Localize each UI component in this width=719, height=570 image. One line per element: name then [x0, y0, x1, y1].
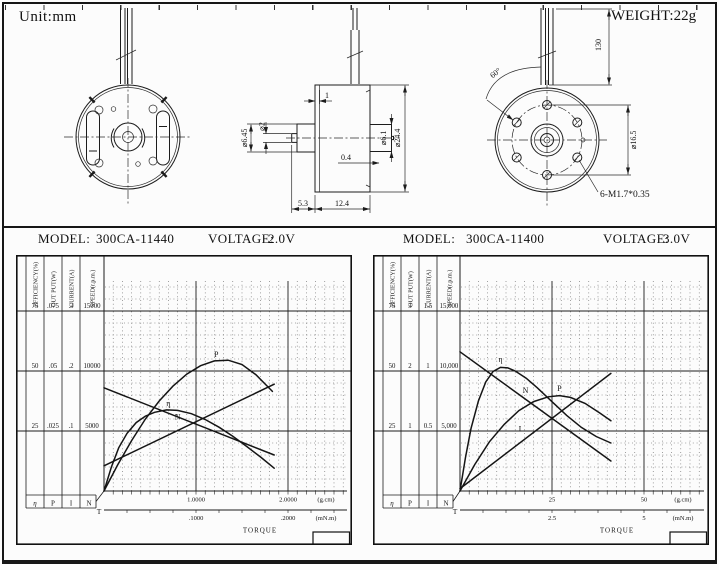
lead-wires-front [116, 8, 136, 84]
unit-gcm: (g.cm) [317, 497, 334, 504]
dim-body-len-label: 12.4 [335, 199, 349, 208]
tick-label-gcm: 50 [641, 497, 648, 504]
dim-shaft-dia-label: ⌀2 [258, 122, 267, 131]
dim-bearing-dia-label: ⌀6.1 [379, 131, 388, 146]
scale-columns: EFFICIENCY(%)755025OUT PUT(W)321CURRENT(… [389, 262, 459, 430]
corner-box [313, 532, 350, 544]
curve-label-P: P [214, 350, 219, 359]
grid [105, 281, 347, 513]
scale-title: SPEED(r.p.m.) [447, 270, 454, 307]
scale-value: 15000 [84, 303, 102, 310]
scale-value: 1 [426, 363, 429, 370]
scale-title: EFFICIENCY(%) [390, 262, 397, 307]
performance-chart-2v: EFFICIENCY(%)755025OUT PUT(W).075.05.025… [16, 255, 352, 545]
scale-value: 3 [408, 303, 412, 310]
legend-cell: η [33, 500, 37, 508]
curve-η [460, 367, 611, 491]
voltage-value: 2.0V [268, 231, 295, 247]
scale-value: .3 [68, 303, 74, 310]
scale-value: 10000 [84, 363, 102, 370]
model-value: 300CA-11440 [96, 231, 174, 247]
tick-label-gcm: 25 [549, 497, 556, 504]
x-axis-title: TORQUE [600, 527, 634, 535]
scale-value: 0.5 [424, 423, 433, 430]
chart-header: MODEL: 300CA-11440 VOLTAGE: 2.0V [16, 231, 352, 253]
curve-label-N: N [175, 413, 181, 422]
unit-mnm: (mN.m) [673, 515, 694, 522]
curve-label-η: η [498, 355, 502, 364]
tick-label-mnm: 2.5 [548, 515, 556, 522]
grid [461, 281, 704, 513]
scale-value: .1 [68, 423, 73, 430]
tick-label-gcm: 1.0000 [187, 497, 205, 504]
unit-mnm: (mN.m) [316, 515, 337, 522]
legend-cell: P [408, 500, 412, 508]
unit-label: Unit:mm [19, 9, 77, 26]
scale-value: 75 [32, 303, 39, 310]
rear-view: 60° ⌀16.5 6-M1.7*0.35 130 [486, 8, 650, 206]
scale-value: 75 [389, 303, 396, 310]
model-label: MODEL: [38, 231, 90, 247]
dim-pin-label: 0.4 [341, 153, 351, 162]
dim-screws-label: 6-M1.7*0.35 [600, 190, 650, 200]
dim-shaft-len-label: 5.3 [298, 199, 308, 208]
tick-label-mnm: .1000 [189, 515, 204, 522]
chart-svg: EFFICIENCY(%)755025OUT PUT(W)321CURRENT(… [373, 255, 709, 545]
axes [17, 256, 351, 544]
curve-I [104, 384, 274, 466]
tick-label-mnm: 5 [642, 515, 645, 522]
scale-value: 25 [389, 423, 396, 430]
dim-wire-len-label: 130 [594, 39, 603, 51]
motor-datasheet-page: 1 ⌀2 ⌀6.45 ⌀6.1 ⌀24.4 0 [0, 0, 719, 570]
scale-value: 2 [408, 363, 412, 370]
axis-labels: 2550(g.cm)2.55(mN.m)TORQUE [548, 497, 693, 535]
lead-wires-rear [538, 8, 556, 85]
performance-chart-3v: EFFICIENCY(%)755025OUT PUT(W)321CURRENT(… [373, 255, 709, 545]
scale-value: 5,000 [441, 423, 457, 430]
dim-boss-dia-label: ⌀6.45 [240, 129, 249, 148]
dim-body-dia-label: ⌀24.4 [393, 129, 402, 148]
scale-value: 5000 [85, 423, 99, 430]
axis-labels: 1.00002.0000(g.cm).1000.2000(mN.m)TORQUE [187, 497, 336, 535]
voltage-value: 3.0V [663, 231, 690, 247]
scale-value: 1 [408, 423, 411, 430]
section-divider [4, 226, 715, 228]
legend-cell: N [86, 500, 91, 508]
curve-label-P: P [557, 384, 562, 393]
scale-title: EFFICIENCY(%) [33, 262, 40, 307]
scale-value: 10,000 [440, 363, 459, 370]
x-axis-title: TORQUE [243, 527, 277, 535]
lead-wire-side [347, 8, 363, 84]
model-label: MODEL: [403, 231, 455, 247]
dim-bolt-circle-label: ⌀16.5 [629, 131, 638, 150]
corner-box [670, 532, 707, 544]
scale-title: OUT PUT(W) [51, 271, 58, 307]
scale-value: .025 [47, 423, 59, 430]
side-view: 1 ⌀2 ⌀6.45 ⌀6.1 ⌀24.4 0 [240, 8, 409, 213]
voltage-label: VOLTAGE: [208, 231, 274, 247]
dim-step-label: 1 [325, 91, 329, 100]
origin-label: T [97, 507, 102, 516]
scale-title: CURRENT(A) [69, 270, 76, 307]
motor-technical-drawing: 1 ⌀2 ⌀6.45 ⌀6.1 ⌀24.4 0 [0, 0, 719, 228]
brush-slot-right [157, 111, 170, 165]
chart-panel-right: MODEL: 300CA-11400 VOLTAGE: 3.0V EFFICIE… [373, 231, 709, 549]
legend-cell: η [390, 500, 394, 508]
curve-N [460, 352, 611, 461]
legend-cell: I [427, 500, 430, 508]
chart-panel-left: MODEL: 300CA-11440 VOLTAGE: 2.0V EFFICIE… [16, 231, 352, 549]
scale-value: .2 [68, 363, 74, 370]
legend-cell: I [70, 500, 73, 508]
unit-gcm: (g.cm) [674, 497, 691, 504]
scale-value: 1.5 [424, 303, 433, 310]
model-value: 300CA-11400 [466, 231, 544, 247]
origin-label: T [453, 507, 458, 516]
scale-title: CURRENT(A) [426, 270, 433, 307]
curve-P [460, 396, 611, 491]
tick-label-mnm: .2000 [281, 515, 296, 522]
curve-label-I: I [519, 425, 522, 434]
scale-title: SPEED(r.p.m.) [90, 270, 97, 307]
legend-cell: P [51, 500, 55, 508]
scale-value: .05 [49, 363, 58, 370]
scale-columns: EFFICIENCY(%)755025OUT PUT(W).075.05.025… [32, 262, 101, 430]
scale-value: 25 [32, 423, 39, 430]
weight-label: WEIGHT:22g [611, 8, 696, 25]
curve-label-N: N [523, 386, 529, 395]
curve-label-η: η [166, 399, 170, 408]
chart-svg: EFFICIENCY(%)755025OUT PUT(W).075.05.025… [16, 255, 352, 545]
tick-label-gcm: 2.0000 [279, 497, 297, 504]
voltage-label: VOLTAGE: [603, 231, 669, 247]
scale-value: 50 [389, 363, 396, 370]
scale-value: 15,000 [440, 303, 459, 310]
legend-cell: N [443, 500, 448, 508]
scale-value: .075 [47, 303, 59, 310]
front-view [64, 8, 192, 206]
chart-header: MODEL: 300CA-11400 VOLTAGE: 3.0V [373, 231, 709, 253]
brush-slot-left [87, 111, 100, 165]
scale-title: OUT PUT(W) [408, 271, 415, 307]
scale-value: 50 [32, 363, 39, 370]
curves: ηNPI [460, 352, 611, 491]
